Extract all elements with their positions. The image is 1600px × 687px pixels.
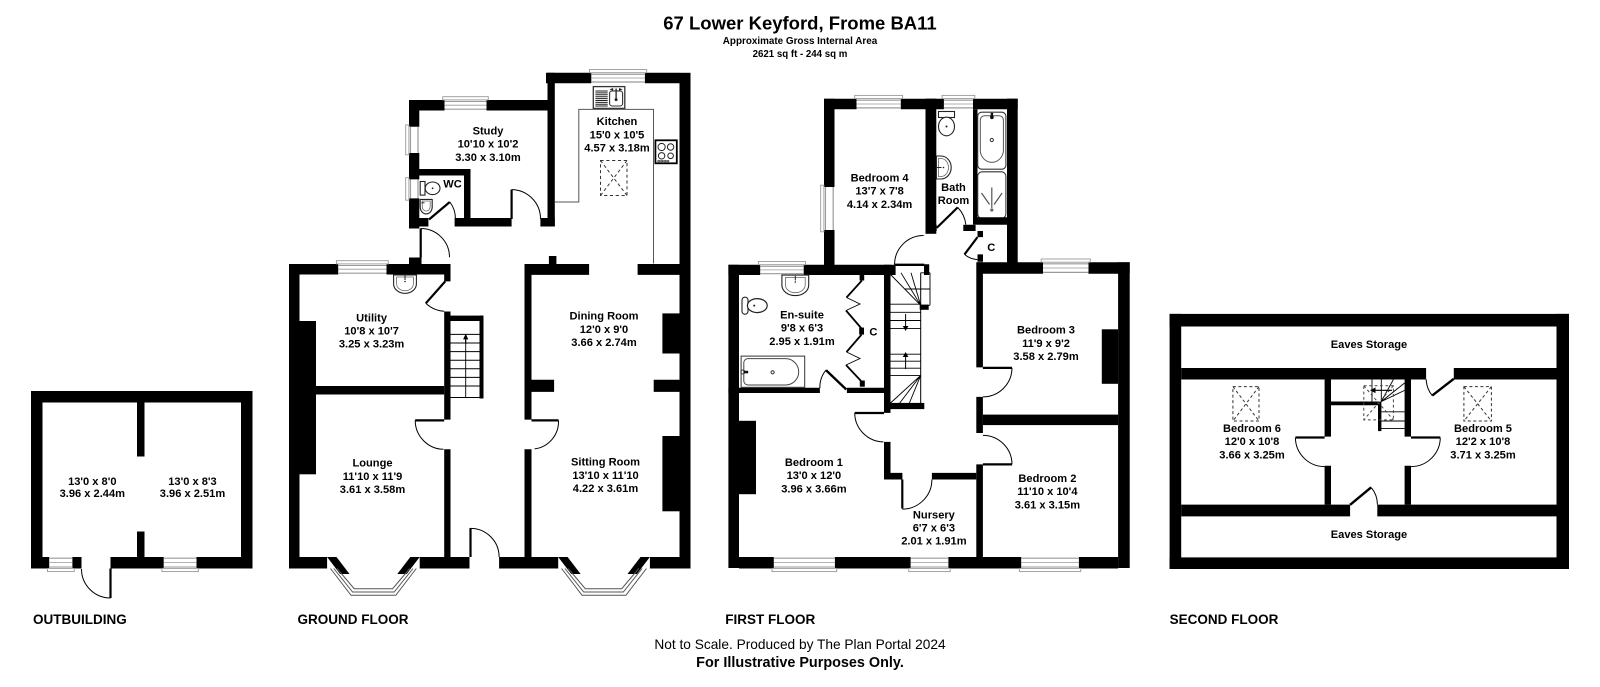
svg-text:For Illustrative Purposes Only: For Illustrative Purposes Only. <box>696 655 904 671</box>
svg-text:FIRST FLOOR: FIRST FLOOR <box>725 612 815 627</box>
svg-text:3.61 x 3.58m: 3.61 x 3.58m <box>340 484 406 496</box>
svg-text:Bedroom 4: Bedroom 4 <box>851 173 910 185</box>
svg-text:13'10 x 11'10: 13'10 x 11'10 <box>572 470 638 482</box>
svg-text:11'10 x 10'4: 11'10 x 10'4 <box>1017 486 1078 498</box>
svg-text:Utility: Utility <box>356 312 388 324</box>
svg-text:Room: Room <box>938 195 970 207</box>
svg-text:2.01 x 1.91m: 2.01 x 1.91m <box>901 536 967 548</box>
svg-text:13'0 x 12'0: 13'0 x 12'0 <box>787 470 842 482</box>
svg-text:SECOND FLOOR: SECOND FLOOR <box>1170 612 1279 627</box>
svg-text:3.96 x 2.44m: 3.96 x 2.44m <box>60 488 126 500</box>
svg-text:4.57 x 3.18m: 4.57 x 3.18m <box>584 143 650 155</box>
svg-text:13'7 x 7'8: 13'7 x 7'8 <box>855 186 903 198</box>
svg-text:10'10 x 10'2: 10'10 x 10'2 <box>458 139 519 151</box>
svg-text:WC: WC <box>443 178 461 190</box>
svg-text:2.95 x 1.91m: 2.95 x 1.91m <box>769 336 835 348</box>
svg-text:13'0 x 8'0: 13'0 x 8'0 <box>68 476 116 488</box>
svg-text:10'8 x 10'7: 10'8 x 10'7 <box>344 326 399 338</box>
svg-text:Study: Study <box>473 126 505 138</box>
svg-text:C: C <box>869 326 877 338</box>
svg-text:11'10 x 11'9: 11'10 x 11'9 <box>343 471 403 483</box>
svg-text:11'9 x 9'2: 11'9 x 9'2 <box>1022 338 1070 350</box>
svg-text:4.22 x 3.61m: 4.22 x 3.61m <box>573 483 639 495</box>
svg-text:Sitting Room: Sitting Room <box>571 457 640 469</box>
svg-text:3.25 x 3.23m: 3.25 x 3.23m <box>339 339 405 351</box>
svg-text:Eaves Storage: Eaves Storage <box>1331 529 1407 541</box>
svg-text:Lounge: Lounge <box>352 458 392 470</box>
svg-text:Bath: Bath <box>941 182 966 194</box>
svg-text:15'0 x 10'5: 15'0 x 10'5 <box>590 129 645 141</box>
svg-text:3.30 x 3.10m: 3.30 x 3.10m <box>455 152 521 164</box>
svg-text:Dining Room: Dining Room <box>569 311 638 323</box>
svg-text:Kitchen: Kitchen <box>597 116 638 128</box>
svg-text:Bedroom 3: Bedroom 3 <box>1017 325 1075 337</box>
svg-text:Approximate Gross Internal Are: Approximate Gross Internal Area <box>723 36 878 47</box>
svg-text:3.66 x 2.74m: 3.66 x 2.74m <box>571 337 637 349</box>
svg-text:En-suite: En-suite <box>780 309 824 321</box>
svg-text:3.96 x 3.66m: 3.96 x 3.66m <box>781 483 847 495</box>
svg-text:OUTBUILDING: OUTBUILDING <box>33 612 127 627</box>
svg-text:9'8 x 6'3: 9'8 x 6'3 <box>781 323 823 335</box>
svg-text:Eaves Storage: Eaves Storage <box>1331 339 1407 351</box>
svg-text:67 Lower Keyford, Frome BA11: 67 Lower Keyford, Frome BA11 <box>663 12 936 33</box>
svg-text:12'0 x 9'0: 12'0 x 9'0 <box>580 324 628 336</box>
svg-text:GROUND FLOOR: GROUND FLOOR <box>298 612 409 627</box>
svg-text:Bedroom 1: Bedroom 1 <box>785 457 843 469</box>
svg-text:3.66 x 3.25m: 3.66 x 3.25m <box>1219 449 1285 461</box>
svg-text:13'0 x 8'3: 13'0 x 8'3 <box>168 476 216 488</box>
svg-text:Not to Scale. Produced by The: Not to Scale. Produced by The Plan Porta… <box>654 637 946 652</box>
svg-text:4.14 x 2.34m: 4.14 x 2.34m <box>847 199 913 211</box>
svg-text:Bedroom 2: Bedroom 2 <box>1018 473 1076 485</box>
svg-text:3.96 x 2.51m: 3.96 x 2.51m <box>160 488 226 500</box>
svg-text:12'2 x 10'8: 12'2 x 10'8 <box>1456 436 1511 448</box>
svg-text:2621 sq ft - 244 sq m: 2621 sq ft - 244 sq m <box>753 49 848 60</box>
svg-text:Nursery: Nursery <box>913 509 956 521</box>
svg-text:6'7 x 6'3: 6'7 x 6'3 <box>913 523 955 535</box>
svg-text:3.58 x 2.79m: 3.58 x 2.79m <box>1013 351 1079 363</box>
svg-text:3.71 x 3.25m: 3.71 x 3.25m <box>1450 449 1516 461</box>
svg-text:C: C <box>987 242 995 254</box>
svg-text:3.61 x 3.15m: 3.61 x 3.15m <box>1015 499 1081 511</box>
svg-text:Bedroom 5: Bedroom 5 <box>1454 423 1512 435</box>
svg-text:Bedroom 6: Bedroom 6 <box>1223 423 1281 435</box>
svg-text:12'0 x 10'8: 12'0 x 10'8 <box>1225 436 1280 448</box>
